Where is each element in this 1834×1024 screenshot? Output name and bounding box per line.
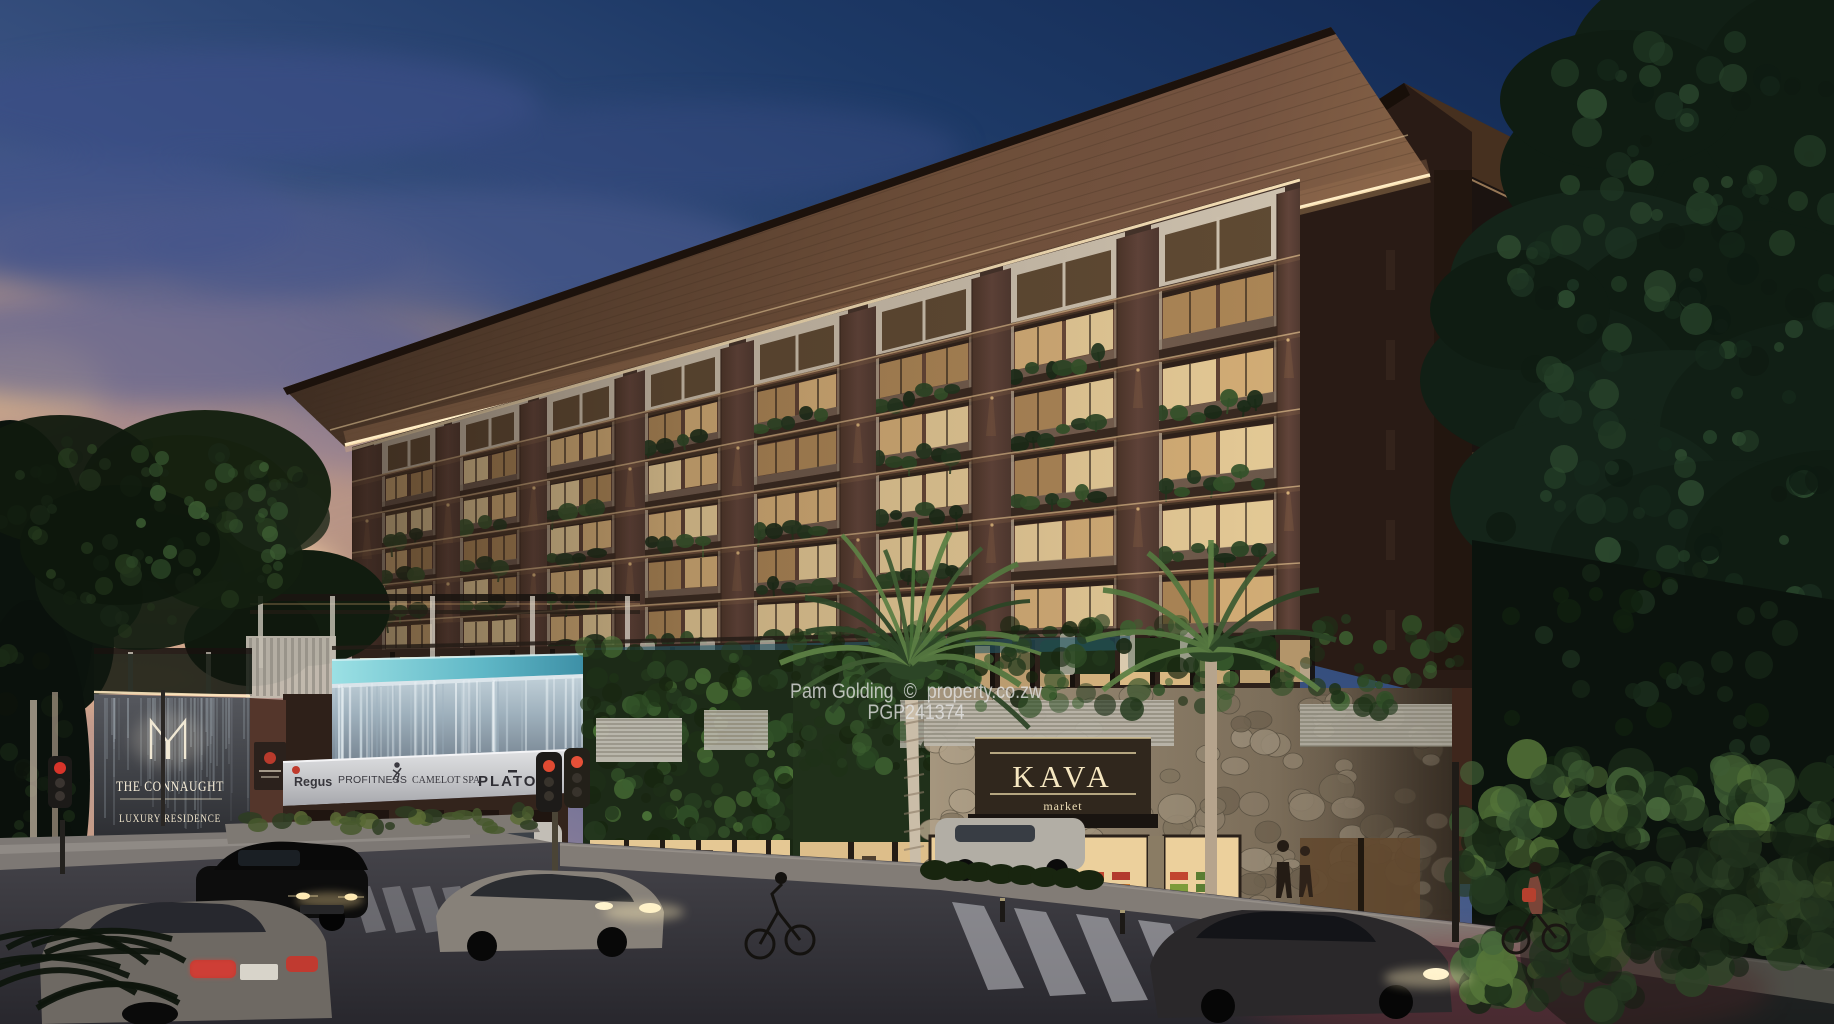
svg-text:Regus: Regus <box>294 775 332 789</box>
svg-text:CAMELOT SPA: CAMELOT SPA <box>412 775 481 786</box>
svg-text:market: market <box>1043 799 1082 813</box>
svg-text:THE CONNAUGHT: THE CONNAUGHT <box>116 779 224 795</box>
svg-text:PGP241374: PGP241374 <box>868 701 965 724</box>
svg-text:Pam Golding © property.co.zw: Pam Golding © property.co.zw <box>790 680 1043 703</box>
svg-text:PLATO: PLATO <box>478 773 537 790</box>
svg-text:KAVA: KAVA <box>1012 759 1114 794</box>
svg-text:LUXURY RESIDENCE: LUXURY RESIDENCE <box>119 811 221 825</box>
